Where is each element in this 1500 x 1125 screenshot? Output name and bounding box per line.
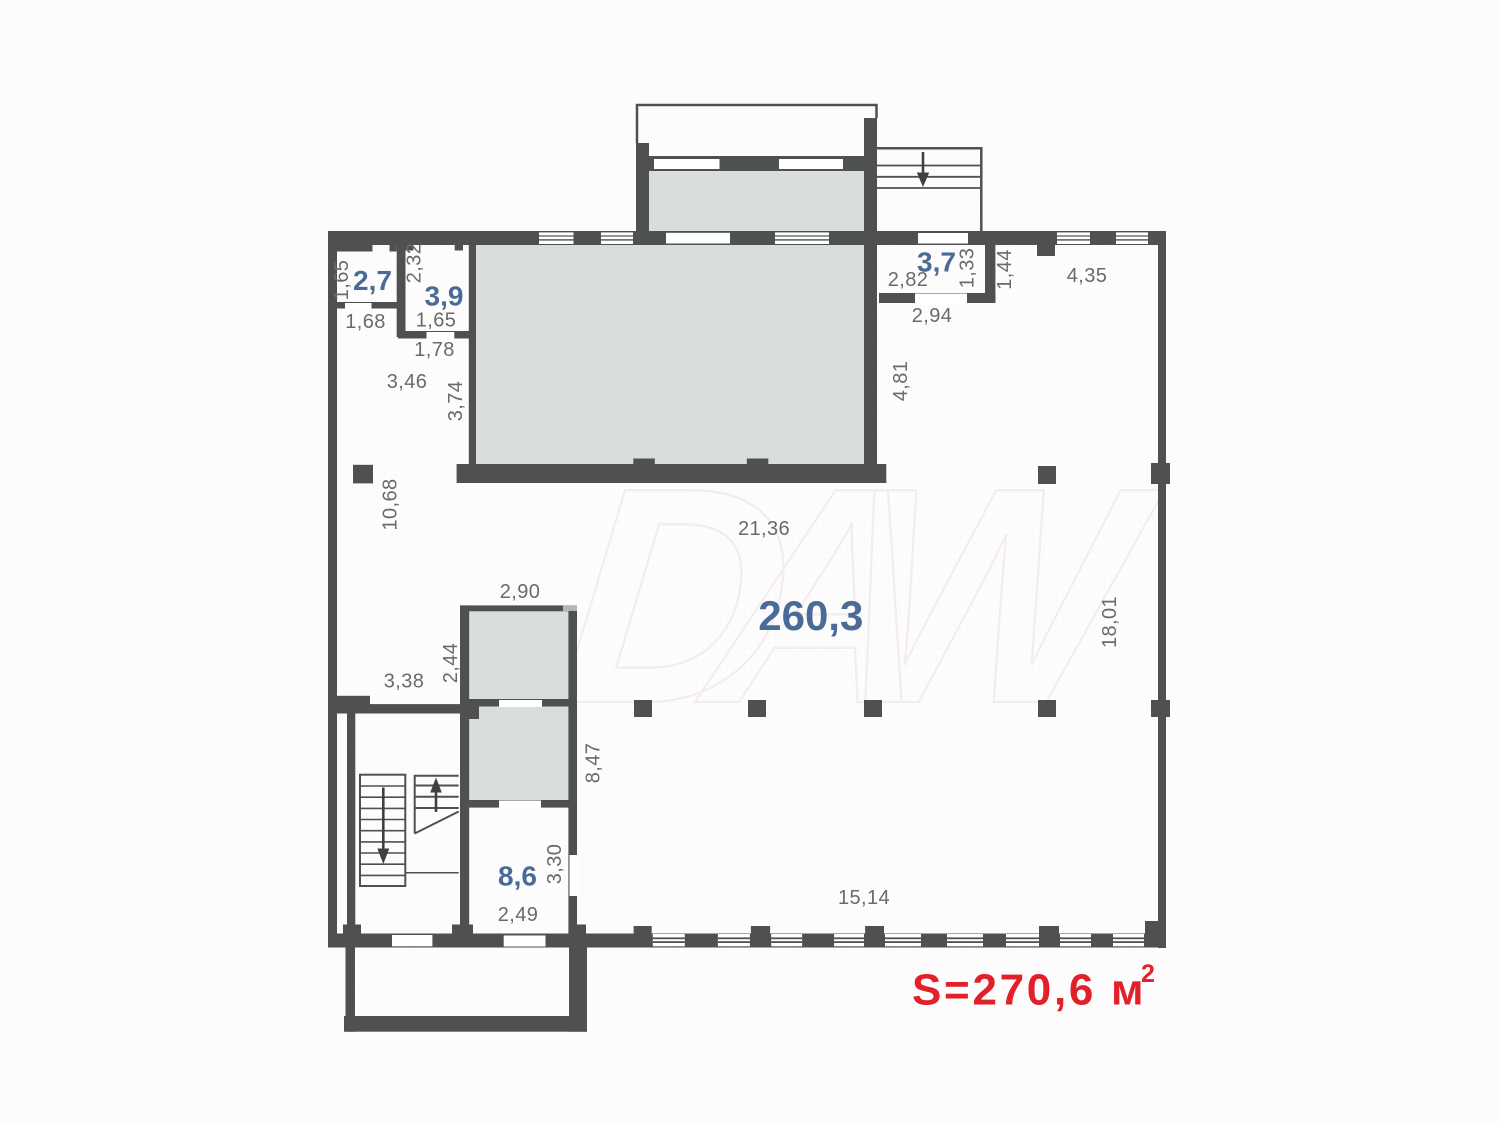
svg-text:1,78: 1,78 — [414, 339, 455, 361]
svg-text:2,49: 2,49 — [498, 904, 539, 926]
svg-text:2: 2 — [1141, 960, 1155, 988]
svg-text:15,14: 15,14 — [838, 887, 890, 909]
svg-text:3,38: 3,38 — [384, 671, 425, 693]
svg-text:8,6: 8,6 — [498, 861, 537, 892]
svg-text:2,7: 2,7 — [353, 265, 392, 296]
svg-text:1,65: 1,65 — [416, 310, 457, 332]
svg-text:S=270,6 м: S=270,6 м — [912, 966, 1146, 1015]
svg-text:260,3: 260,3 — [758, 592, 863, 639]
svg-text:2,44: 2,44 — [440, 643, 462, 684]
svg-text:3,74: 3,74 — [445, 381, 467, 422]
svg-text:10,68: 10,68 — [380, 478, 402, 530]
svg-text:21,36: 21,36 — [738, 518, 790, 540]
svg-text:2,32: 2,32 — [404, 243, 426, 284]
svg-text:1,65: 1,65 — [331, 260, 353, 301]
svg-text:3,9: 3,9 — [425, 281, 464, 312]
svg-text:2,90: 2,90 — [500, 581, 541, 603]
svg-text:1,68: 1,68 — [345, 311, 386, 333]
svg-text:4,35: 4,35 — [1067, 265, 1108, 287]
svg-text:18,01: 18,01 — [1099, 596, 1121, 648]
svg-text:4,81: 4,81 — [890, 361, 912, 402]
svg-text:3,30: 3,30 — [544, 844, 566, 885]
svg-text:2,94: 2,94 — [912, 305, 953, 327]
svg-text:1,44: 1,44 — [994, 249, 1016, 290]
svg-text:3,7: 3,7 — [917, 247, 956, 278]
svg-text:3,46: 3,46 — [387, 371, 428, 393]
svg-text:1,33: 1,33 — [957, 248, 979, 289]
svg-text:8,47: 8,47 — [583, 743, 605, 784]
